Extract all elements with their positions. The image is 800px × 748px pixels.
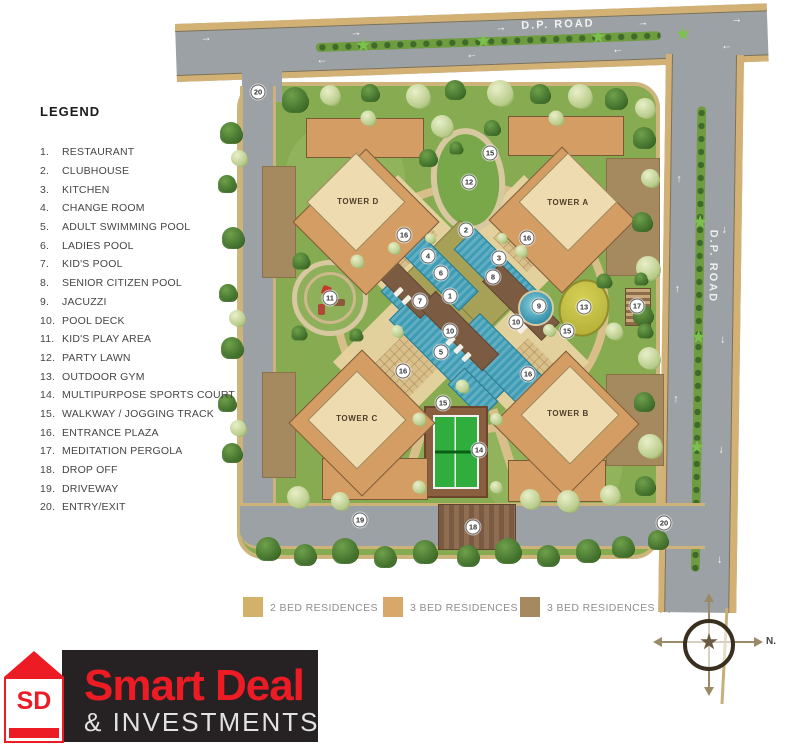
plan-marker: 15 [436,396,451,411]
lane-arrow-icon: ↓ [720,335,726,346]
tree [641,169,659,187]
plan-marker: 9 [532,299,547,314]
tree [457,545,479,567]
tree [331,492,349,510]
lane-arrow-icon: ← [612,44,623,55]
tree [361,84,379,102]
tree [413,413,426,426]
legend-item: 11.KID'S PLAY AREA [40,330,252,349]
legend-item: 8.SENIOR CITIZEN POOL [40,274,252,293]
legend-item: 12.PARTY LAWN [40,349,252,368]
tree [612,536,634,558]
tree [413,481,426,494]
lane-arrow-icon: ↑ [673,394,679,405]
legend-item: 20.ENTRY/EXIT [40,498,252,517]
legend-panel: LEGEND 1.RESTAURANT2.CLUBHOUSE3.KITCHEN4… [40,104,252,517]
legend-item: 7.KID'S POOL [40,255,252,274]
tree [635,98,655,118]
legend-item: 13.OUTDOOR GYM [40,367,252,386]
plan-marker: 10 [509,315,524,330]
tree [634,392,654,412]
tower-b-label: TOWER B [523,409,613,418]
plan-marker: 17 [630,299,645,314]
plan-marker: 20 [251,85,266,100]
plan-marker: 14 [472,443,487,458]
tree [638,434,662,458]
legend-item: 1.RESTAURANT [40,143,252,162]
residence-block [262,166,296,278]
tree [635,476,655,496]
legend-item: 16.ENTRANCE PLAZA [40,423,252,442]
tower-c-label: TOWER C [312,414,402,423]
residence-swatch [383,597,403,617]
tree [431,115,453,137]
lane-arrow-icon: ↑ [676,174,682,185]
legend-list: 1.RESTAURANT2.CLUBHOUSE3.KITCHEN4.CHANGE… [40,143,252,517]
tree [597,274,612,289]
legend-item: 4.CHANGE ROOM [40,199,252,218]
plan-marker: 10 [443,324,458,339]
residence-swatch [520,597,540,617]
lane-arrow-icon: ↓ [718,445,724,456]
site-plan-canvas: D.P. ROAD →→→→→←←←← D.P. ROAD ↑↑↑↑↓↓↓↓ [0,0,800,748]
tree [456,380,469,393]
tree [576,539,600,563]
road-edge [728,55,744,613]
lane-arrow-icon: ← [316,55,327,66]
tree [351,255,364,268]
tree [600,485,620,505]
compass: N. [648,597,783,697]
plan-marker: 3 [492,251,507,266]
tree [294,544,316,566]
legend-item: 18.DROP OFF [40,461,252,480]
lane-arrow-icon: → [350,28,361,39]
legend-item: 5.ADULT SWIMMING POOL [40,218,252,237]
tree [632,212,652,232]
tree [484,120,500,136]
plan-marker: 20 [657,516,672,531]
lane-arrow-icon: ↑ [675,284,681,295]
tree [282,87,308,113]
legend-item: 2.CLUBHOUSE [40,162,252,181]
plan-marker: 6 [434,266,449,281]
tree [537,545,559,567]
legend-item: 10.POOL DECK [40,311,252,330]
plan-marker: 7 [413,294,428,309]
tree [320,85,340,105]
plan-marker: 13 [577,300,592,315]
legend-item: 19.DRIVEWAY [40,479,252,498]
residence-legend-item: 3 BED RESIDENCES [410,602,518,614]
plan-marker: 18 [466,520,481,535]
plan-marker: 11 [323,291,338,306]
plan-marker: 8 [486,270,501,285]
logo: SD Smart Deal & INVESTMENTS [0,645,330,748]
residence-legend-item: 2 BED RESIDENCES [270,602,378,614]
residence-swatch [243,597,263,617]
tree [425,233,435,243]
tree [557,490,579,512]
lane-arrow-icon: → [495,22,506,33]
plan-marker: 1 [443,289,458,304]
tree [487,80,513,106]
tree [543,324,555,336]
tree [350,329,363,342]
tree [549,111,564,126]
tree [638,347,660,369]
tower-a-label: TOWER A [523,198,613,207]
tree [292,326,307,341]
lane-arrow-icon: → [200,33,211,44]
plan-marker: 12 [462,175,477,190]
lane-arrow-icon: ↓ [721,225,727,236]
road-median [316,31,661,52]
plan-marker: 5 [434,345,449,360]
tree [419,149,437,167]
plan-marker: 4 [421,249,436,264]
tree [490,413,502,425]
tree [568,84,592,108]
legend-title: LEGEND [40,104,252,119]
road-right-label: D.P. ROAD [706,230,720,370]
tree [374,546,396,568]
plan-marker: 16 [397,228,412,243]
road-edge [175,3,767,32]
tree [450,142,463,155]
tree [256,537,280,561]
house-stripe [9,728,59,738]
tree [413,540,437,564]
plan-marker: 16 [521,367,536,382]
tree [495,538,521,564]
compass-north-label: N. [766,636,776,647]
tree [388,242,400,254]
plan-marker: 15 [483,146,498,161]
plan-marker: 19 [353,513,368,528]
tree [635,273,648,286]
plan-marker: 16 [520,231,535,246]
legend-item: 17.MEDITATION PERGOLA [40,442,252,461]
house-body: SD [4,677,64,743]
median-bush [675,26,691,42]
tree [605,88,627,110]
tower-d-label: TOWER D [313,197,403,206]
compass-arrow-west [653,637,662,647]
house-roof-icon [4,651,64,677]
tree [445,80,465,100]
tree [287,486,309,508]
tree [293,253,310,270]
lane-arrow-icon: ← [466,49,477,60]
tree [648,530,668,550]
compass-arrow-north [704,593,714,602]
play-equipment [318,304,325,315]
legend-item: 14.MULTIPURPOSE SPORTS COURT [40,386,252,405]
legend-item: 6.LADIES POOL [40,236,252,255]
logo-house-icon: SD [4,651,64,745]
plan-marker: 16 [396,364,411,379]
logo-subtitle: & INVESTMENTS [84,707,319,738]
lane-arrow-icon: ← [721,41,732,52]
tree [391,325,403,337]
legend-item: 15.WALKWAY / JOGGING TRACK [40,405,252,424]
tree [406,84,430,108]
plan-marker: 15 [560,324,575,339]
tree [530,84,550,104]
tree [515,245,527,257]
tree [497,233,507,243]
tree [633,127,655,149]
tree [638,324,653,339]
tree [361,111,376,126]
logo-monogram: SD [6,687,62,716]
lane-arrow-icon: ↓ [717,555,723,566]
tree [520,489,540,509]
legend-item: 3.KITCHEN [40,180,252,199]
compass-arrow-east [754,637,763,647]
logo-title: Smart Deal [84,661,304,711]
lane-arrow-icon: → [637,18,648,29]
compass-arrow-south [704,687,714,696]
legend-item: 9.JACUZZI [40,293,252,312]
tree [332,538,358,564]
tree [490,481,502,493]
plan-marker: 2 [459,223,474,238]
lane-arrow-icon: → [731,14,742,25]
tree [606,323,623,340]
